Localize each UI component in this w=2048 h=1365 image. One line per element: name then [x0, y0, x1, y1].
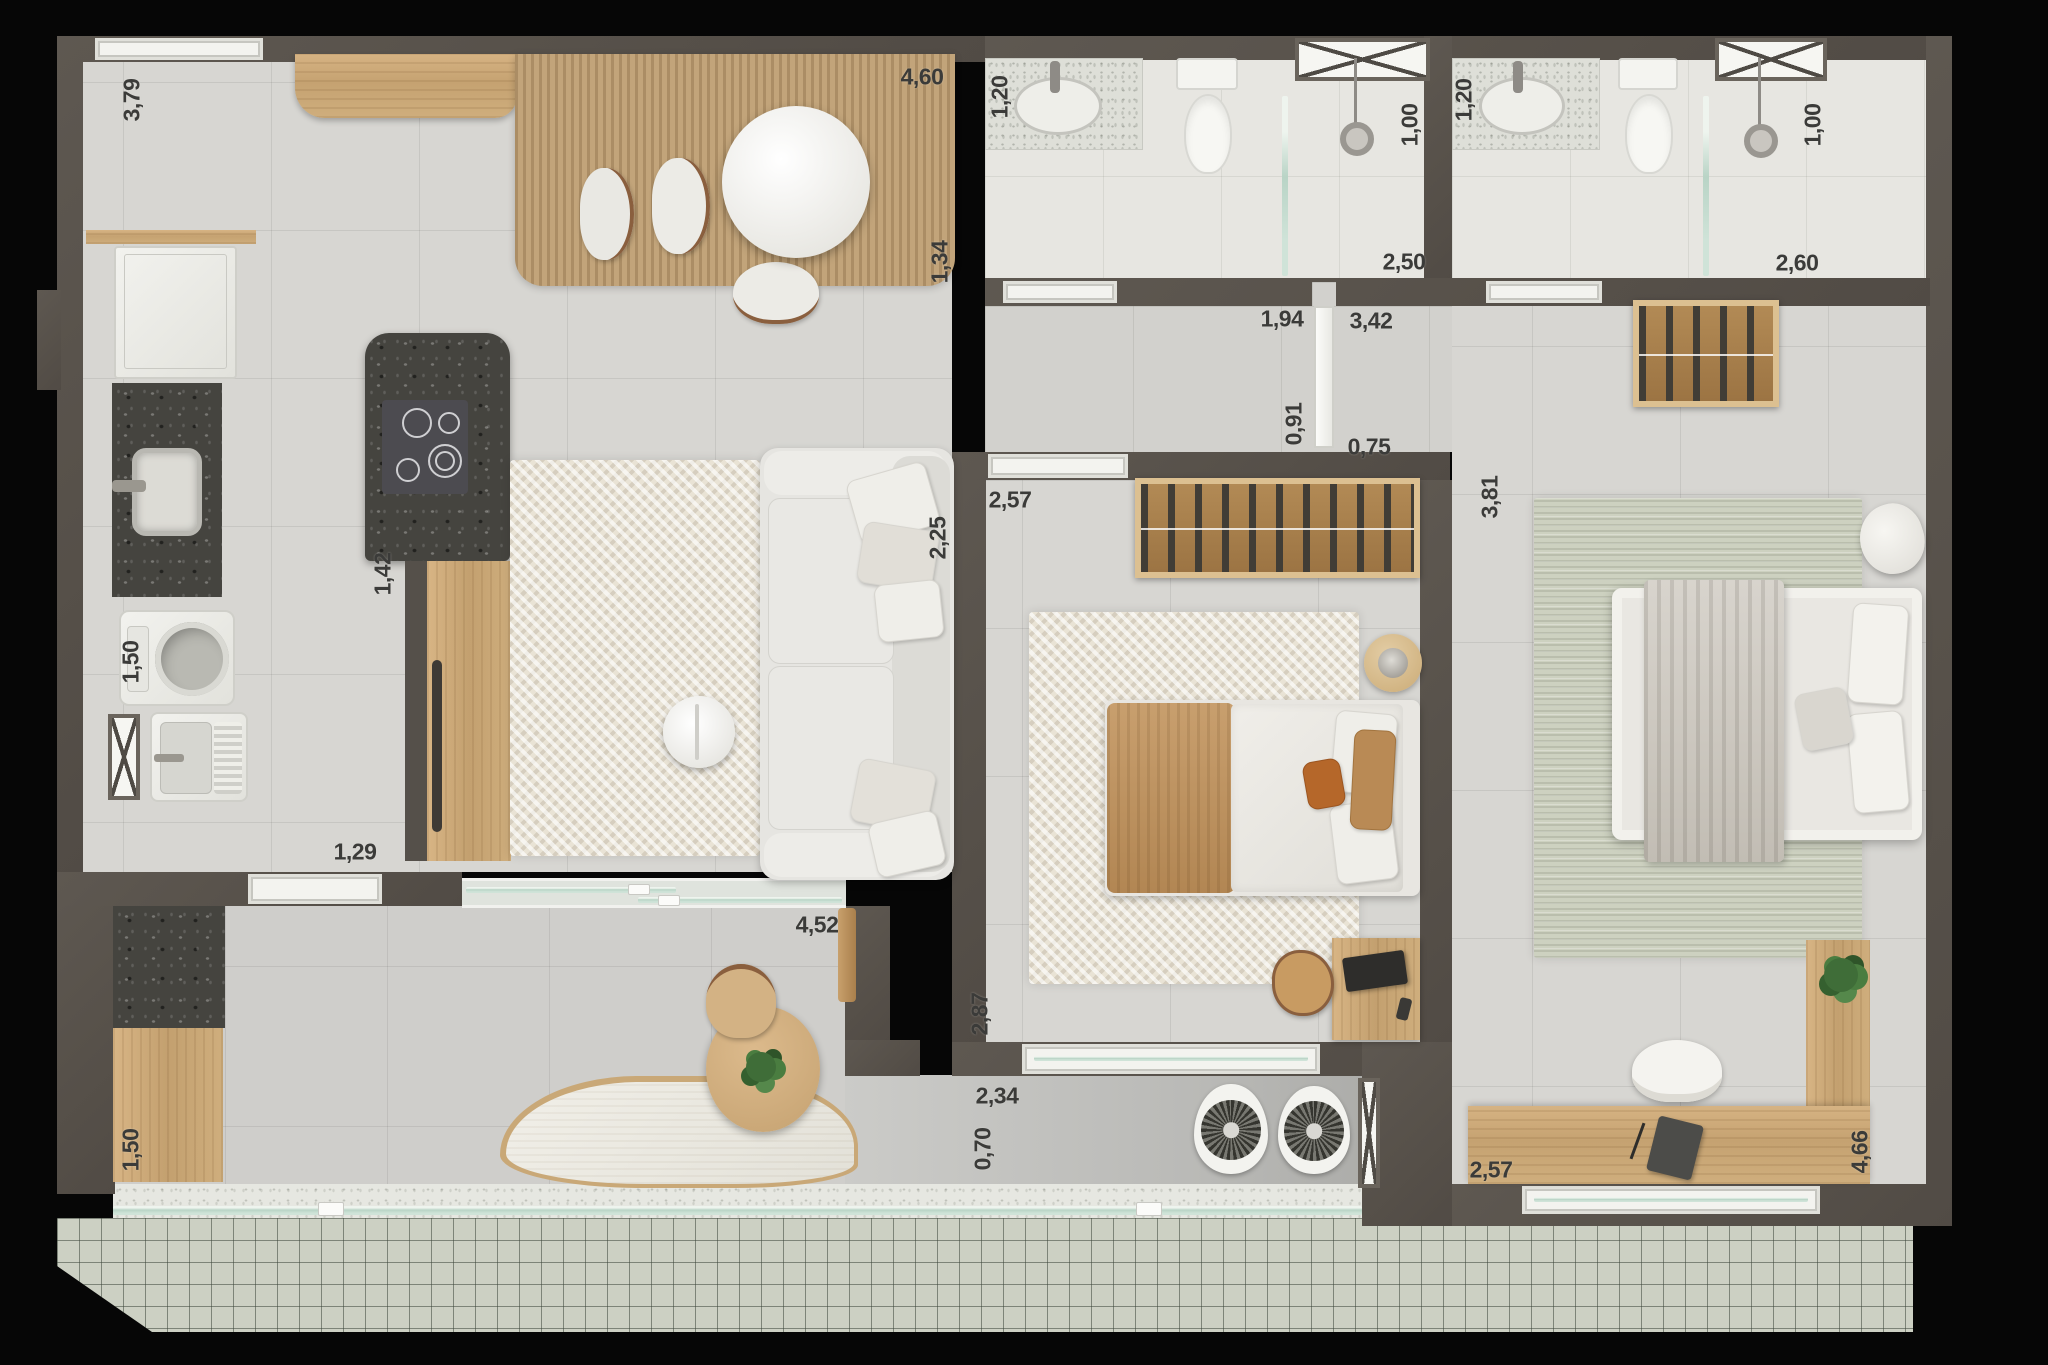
dining-chair	[733, 262, 819, 324]
balcony-plant	[746, 1052, 776, 1082]
sideboard	[295, 54, 517, 118]
ac-unit	[1278, 1086, 1350, 1174]
burner	[402, 408, 432, 438]
bed-pillow	[1847, 602, 1910, 706]
dimension-label: 4,60	[901, 64, 944, 91]
dimension-label: 2,57	[989, 487, 1032, 514]
floor-plan-canvas: 3,79 4,60 1,20 1,00 2,50 1,20 1,00 2,60 …	[0, 0, 2048, 1365]
kitchen-counter-strip	[86, 230, 256, 244]
fridge	[114, 246, 237, 379]
railing-clip	[318, 1202, 344, 1216]
bed-throw	[1644, 580, 1784, 862]
wall-left	[57, 36, 83, 874]
door-handle	[628, 884, 650, 895]
dimension-label: 2,25	[925, 517, 952, 560]
dimension-label: 4,52	[796, 912, 839, 939]
wall-left-step	[37, 290, 61, 390]
wall-balcony-corner	[845, 1040, 920, 1076]
faucet	[1050, 61, 1060, 93]
drying-rack	[108, 714, 140, 800]
shower-glass	[1703, 96, 1709, 276]
bathroom2-x-window	[1715, 38, 1827, 81]
wall-right	[1926, 36, 1952, 1226]
island-handle	[432, 660, 442, 832]
living-side-table	[663, 696, 735, 768]
balcony-chair	[706, 964, 776, 1038]
glass-railing	[113, 1206, 1362, 1215]
dimension-label: 1,20	[1451, 79, 1478, 122]
wall-bath-bottom	[985, 278, 1930, 306]
pergola-grid	[57, 1218, 1913, 1332]
shower-head	[1354, 58, 1357, 128]
bed-pillow-rust	[1301, 757, 1347, 811]
tank-faucet	[154, 754, 184, 762]
railing-clip	[1136, 1202, 1162, 1216]
ac-unit	[1194, 1084, 1268, 1174]
dimension-label: 3,81	[1477, 476, 1504, 519]
burner	[396, 458, 420, 482]
bedroom1-wardrobe	[1135, 478, 1420, 578]
bed-pillow-tan	[1349, 729, 1396, 831]
kitchen-top-window	[95, 38, 263, 60]
island-side	[405, 561, 427, 861]
dining-chair	[652, 158, 710, 254]
fan-blades	[1201, 1100, 1261, 1160]
bed-pillow-small	[1793, 686, 1855, 753]
bathroom1-x-window	[1295, 38, 1430, 81]
faucet	[1513, 61, 1523, 93]
shower-head	[1758, 58, 1761, 128]
dimension-label: 1,50	[118, 641, 145, 684]
tank-washboard	[214, 722, 242, 794]
hall-niche	[1312, 282, 1336, 306]
door-handle	[658, 895, 680, 906]
fridge-door	[124, 254, 227, 369]
hall-door-leaf	[1314, 306, 1334, 448]
bathroom1-door	[1003, 281, 1117, 303]
potted-plant	[1824, 958, 1858, 992]
bed-blanket	[1107, 703, 1235, 893]
dining-table	[722, 106, 870, 258]
burner	[438, 412, 460, 434]
burner-double	[428, 444, 462, 478]
wall-bedroom1-left	[952, 452, 986, 1042]
dimension-label: 2,50	[1383, 249, 1426, 276]
bedroom2-wardrobe	[1633, 300, 1779, 407]
bedroom1-bed	[1105, 700, 1420, 896]
bedroom1-door	[988, 454, 1128, 478]
dimension-label: 1,50	[118, 1129, 145, 1172]
living-rug	[510, 460, 760, 856]
kitchen-faucet	[112, 480, 146, 492]
service-counter	[113, 906, 225, 1028]
sliding-glass-door	[462, 878, 846, 908]
dimension-label: 2,34	[976, 1083, 1019, 1110]
wall-bedrooms-divider	[1420, 480, 1452, 1042]
washer-drum	[155, 622, 229, 696]
dimension-label: 1,42	[370, 553, 397, 596]
cooktop	[382, 400, 468, 494]
dimension-label: 2,60	[1776, 250, 1819, 277]
dimension-label: 3,42	[1350, 308, 1393, 335]
fan-blades	[1284, 1101, 1344, 1161]
toilet	[1618, 58, 1678, 90]
wall-left-lower	[57, 874, 115, 1194]
toilet-bowl	[1625, 94, 1673, 174]
shower-drain	[1744, 124, 1778, 158]
toilet	[1176, 58, 1238, 90]
dimension-label: 2,87	[967, 993, 994, 1036]
laundry-tank	[150, 712, 248, 802]
dimension-label: 0,70	[970, 1128, 997, 1171]
bed-pillow	[1846, 710, 1911, 815]
shower-glass	[1282, 96, 1288, 276]
dimension-label: 0,75	[1348, 434, 1391, 461]
bathroom2-door	[1486, 281, 1602, 303]
sofa-pillow	[873, 579, 945, 644]
dimension-label: 1,29	[334, 839, 377, 866]
kitchen-service-window	[248, 874, 382, 904]
dimension-label: 1,20	[987, 76, 1014, 119]
dimension-label: 1,94	[1261, 306, 1304, 333]
dimension-label: 3,79	[119, 79, 146, 122]
bedroom2-chair	[1632, 1040, 1722, 1102]
bedroom2-window-glass	[1534, 1197, 1808, 1202]
bedroom1-window-glass	[1034, 1056, 1308, 1061]
dimension-label: 0,91	[1281, 403, 1308, 446]
dimension-label: 1,34	[927, 241, 954, 284]
dimension-label: 4,66	[1847, 1131, 1874, 1174]
dimension-label: 2,57	[1470, 1157, 1513, 1184]
table-detail	[695, 704, 699, 760]
dimension-label: 1,00	[1397, 104, 1424, 147]
sofa	[760, 448, 954, 880]
nightstand-lamp	[1378, 648, 1408, 678]
bedroom2-bed	[1612, 588, 1922, 840]
dining-chair	[580, 168, 634, 260]
toilet-bowl	[1184, 94, 1232, 174]
balcony-door-leaf-open	[838, 908, 856, 1002]
kitchen-sink	[132, 448, 202, 536]
dimension-label: 1,00	[1800, 104, 1827, 147]
ac-louver-x	[1358, 1078, 1380, 1188]
bedroom1-desk-chair	[1272, 950, 1334, 1016]
shower-drain	[1340, 122, 1374, 156]
